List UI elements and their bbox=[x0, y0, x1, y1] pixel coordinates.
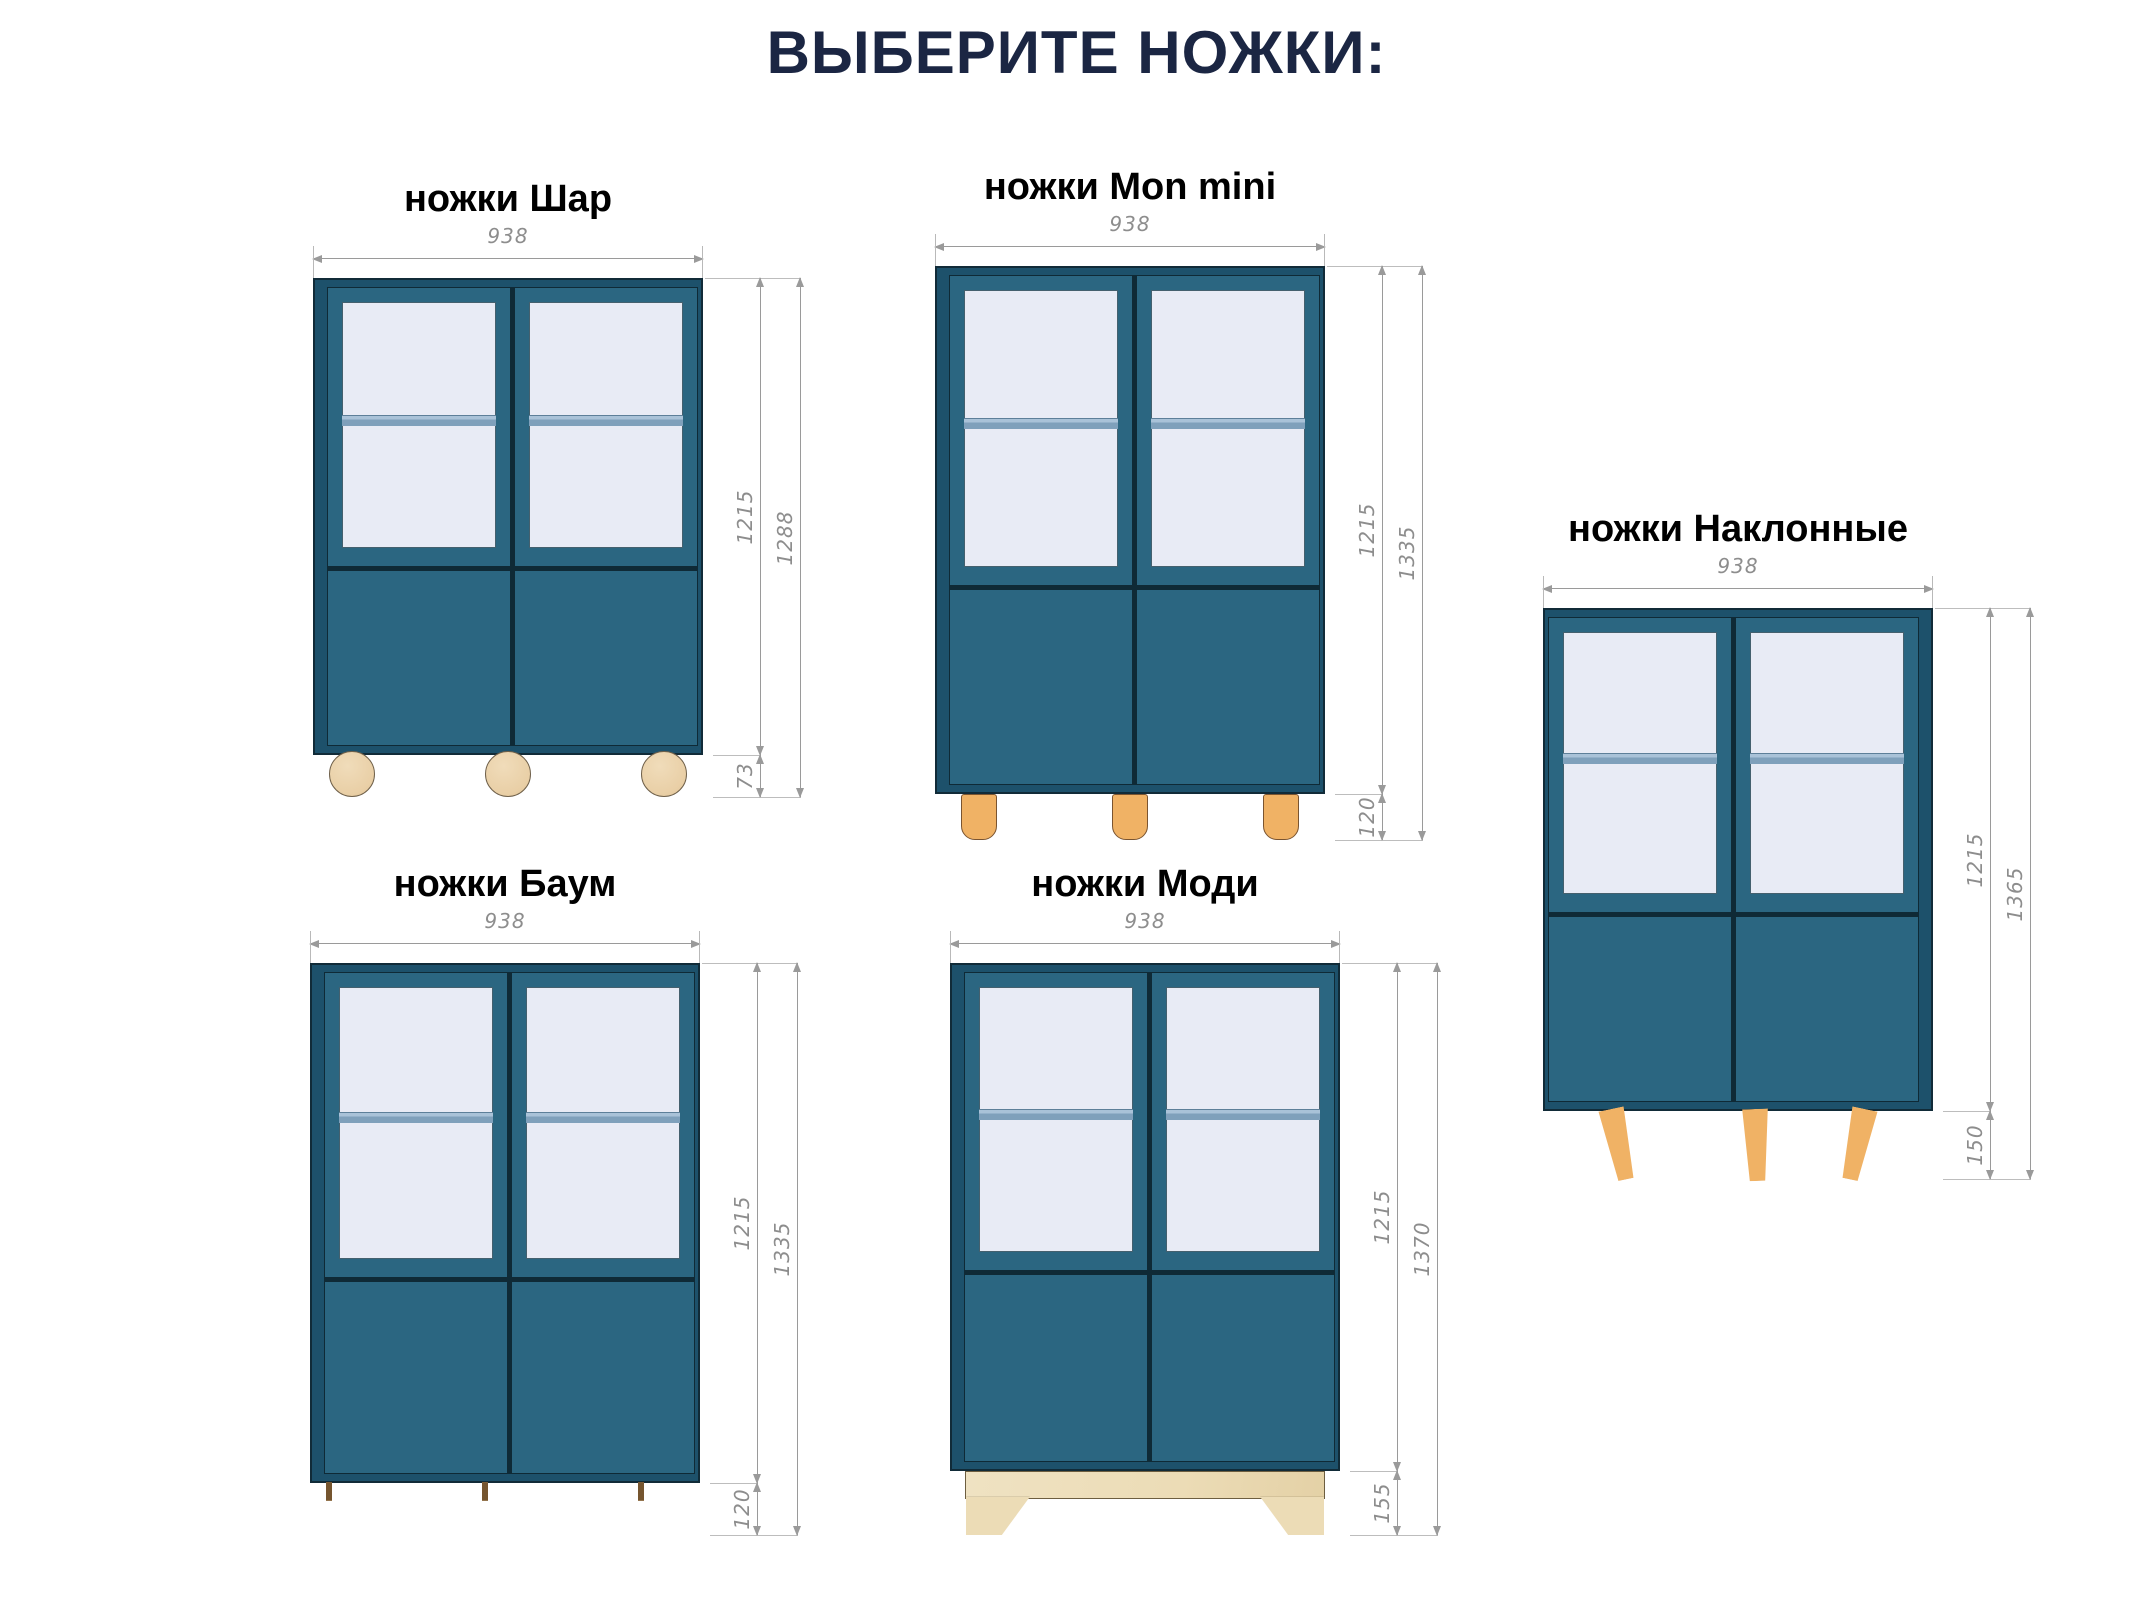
shelf-line bbox=[339, 1112, 493, 1123]
dim-arrow-up-icon bbox=[796, 277, 804, 287]
dim-arrow-up-icon bbox=[1393, 962, 1401, 972]
dim-extension-tick bbox=[310, 931, 311, 965]
total-height-value: 1335 bbox=[770, 1222, 794, 1277]
width-dim-value: 938 bbox=[310, 909, 700, 933]
dim-extension-tick bbox=[935, 234, 936, 268]
glass-pane bbox=[1166, 987, 1320, 1252]
dim-extension-tick bbox=[1324, 234, 1325, 268]
angled-leg bbox=[1595, 1106, 1641, 1183]
dim-arrow-down-icon bbox=[2026, 1170, 2034, 1180]
total-height-dim: 1335 bbox=[1422, 266, 1423, 840]
solid-doors-row bbox=[327, 570, 698, 746]
shelf-line bbox=[979, 1109, 1133, 1120]
body-height-value: 1215 bbox=[730, 1196, 754, 1251]
disc-stack-foot bbox=[326, 1483, 372, 1535]
ball-foot bbox=[329, 751, 375, 797]
glass-door-left bbox=[949, 275, 1133, 586]
body-height-dim: 1215 bbox=[1382, 266, 1383, 794]
glass-doors-row bbox=[324, 972, 695, 1278]
dim-extension-tick bbox=[313, 246, 314, 280]
body-height-value: 1215 bbox=[1963, 832, 1987, 887]
dim-arrow-up-icon bbox=[756, 754, 764, 764]
dim-arrow-up-icon bbox=[753, 1482, 761, 1492]
legs-angled bbox=[1543, 1111, 1933, 1179]
glass-door-right bbox=[514, 287, 698, 567]
cabinet-doors bbox=[324, 972, 695, 1474]
glass-door-left bbox=[327, 287, 511, 567]
solid-door-right bbox=[514, 570, 698, 746]
dim-extension-line bbox=[1935, 608, 2031, 609]
solid-doors-row bbox=[324, 1281, 695, 1474]
glass-pane bbox=[526, 987, 680, 1259]
dim-arrow-up-icon bbox=[753, 962, 761, 972]
glass-pane bbox=[1151, 290, 1305, 567]
glass-doors-row bbox=[1548, 617, 1919, 913]
cylinder-foot bbox=[961, 794, 997, 840]
shelf-line bbox=[1151, 418, 1305, 429]
solid-door-left bbox=[324, 1281, 508, 1474]
glass-door-right bbox=[1151, 972, 1335, 1271]
variant-label-baum: ножки Баум bbox=[280, 863, 730, 906]
plinth-band bbox=[965, 1471, 1325, 1499]
cabinet-drawing bbox=[1543, 608, 1933, 1111]
dim-arrow-down-icon bbox=[1986, 1170, 1994, 1180]
dim-extension-tick bbox=[1932, 576, 1933, 610]
total-height-dim: 1335 bbox=[797, 963, 798, 1535]
glass-door-right bbox=[511, 972, 695, 1278]
variant-label-shar: ножки Шар bbox=[283, 178, 733, 221]
glass-pane bbox=[339, 987, 493, 1259]
shelf-line bbox=[342, 415, 496, 426]
plinth-base bbox=[965, 1471, 1325, 1535]
solid-door-right bbox=[1735, 916, 1919, 1102]
dim-arrow-down-icon bbox=[753, 1526, 761, 1536]
leg-height-value: 73 bbox=[733, 762, 757, 789]
cylinder-foot bbox=[1112, 794, 1148, 840]
cabinet-doors bbox=[949, 275, 1320, 785]
body-height-value: 1215 bbox=[1370, 1190, 1394, 1245]
glass-pane bbox=[964, 290, 1118, 567]
variant-label-naklonnye: ножки Наклонные bbox=[1513, 508, 1963, 551]
leg-height-value: 120 bbox=[730, 1488, 754, 1529]
glass-doors-row bbox=[964, 972, 1335, 1271]
variant-label-modi: ножки Моди bbox=[920, 863, 1370, 906]
disc-stack-foot bbox=[482, 1483, 528, 1535]
legs-plinth bbox=[950, 1471, 1340, 1535]
dim-arrow-down-icon bbox=[1378, 831, 1386, 841]
glass-door-left bbox=[324, 972, 508, 1278]
dim-arrow-up-icon bbox=[2026, 607, 2034, 617]
glass-pane bbox=[979, 987, 1133, 1252]
dim-arrow-up-icon bbox=[756, 277, 764, 287]
solid-doors-row bbox=[949, 589, 1320, 785]
dim-arrow-down-icon bbox=[1433, 1526, 1441, 1536]
cabinet-doors bbox=[1548, 617, 1919, 1102]
plinth-foot-right bbox=[1260, 1497, 1324, 1535]
disc-stack-foot bbox=[638, 1483, 684, 1535]
leg-height-dim: 120 bbox=[757, 1483, 758, 1535]
cylinder-foot bbox=[1263, 794, 1299, 840]
dim-extension-line bbox=[710, 1483, 758, 1484]
dim-extension-line bbox=[1943, 1111, 1991, 1112]
glass-door-right bbox=[1136, 275, 1320, 586]
glass-doors-row bbox=[949, 275, 1320, 586]
dim-extension-line bbox=[1335, 794, 1383, 795]
glass-doors-row bbox=[327, 287, 698, 567]
dim-extension-tick bbox=[699, 931, 700, 965]
width-dim-value: 938 bbox=[313, 224, 703, 248]
leg-height-dim: 150 bbox=[1990, 1111, 1991, 1179]
leg-height-value: 155 bbox=[1370, 1482, 1394, 1523]
dim-extension-line bbox=[705, 278, 801, 279]
shelf-line bbox=[529, 415, 683, 426]
angled-leg bbox=[1739, 1108, 1773, 1181]
dim-arrow-down-icon bbox=[756, 788, 764, 798]
glass-pane bbox=[342, 302, 496, 548]
glass-door-right bbox=[1735, 617, 1919, 913]
leg-height-dim: 120 bbox=[1382, 794, 1383, 840]
dim-extension-line bbox=[1342, 963, 1438, 964]
dim-arrow-up-icon bbox=[793, 962, 801, 972]
leg-height-value: 150 bbox=[1963, 1124, 1987, 1165]
cabinet-doors bbox=[327, 287, 698, 746]
dim-arrow-down-icon bbox=[1418, 831, 1426, 841]
width-dim-line bbox=[950, 943, 1340, 944]
solid-door-right bbox=[1151, 1274, 1335, 1462]
dim-arrow-up-icon bbox=[1378, 265, 1386, 275]
glass-pane bbox=[1563, 632, 1717, 894]
solid-doors-row bbox=[964, 1274, 1335, 1462]
ball-foot bbox=[485, 751, 531, 797]
leg-height-dim: 73 bbox=[760, 755, 761, 797]
width-dim-value: 938 bbox=[935, 212, 1325, 236]
solid-door-left bbox=[1548, 916, 1732, 1102]
body-height-dim: 1215 bbox=[757, 963, 758, 1483]
dim-extension-line bbox=[702, 963, 798, 964]
body-height-dim: 1215 bbox=[1397, 963, 1398, 1471]
solid-door-right bbox=[1136, 589, 1320, 785]
disc bbox=[486, 1482, 488, 1501]
glass-pane bbox=[529, 302, 683, 548]
body-height-dim: 1215 bbox=[1990, 608, 1991, 1111]
total-height-dim: 1288 bbox=[800, 278, 801, 797]
shelf-line bbox=[526, 1112, 680, 1123]
legs-cylinder bbox=[935, 794, 1325, 840]
total-height-value: 1365 bbox=[2003, 866, 2027, 921]
dim-arrow-up-icon bbox=[1433, 962, 1441, 972]
cabinet-drawing bbox=[950, 963, 1340, 1471]
solid-door-right bbox=[511, 1281, 695, 1474]
total-height-dim: 1370 bbox=[1437, 963, 1438, 1535]
total-height-value: 1335 bbox=[1395, 526, 1419, 581]
dim-arrow-up-icon bbox=[1986, 1110, 1994, 1120]
width-dim-line bbox=[310, 943, 700, 944]
width-dim-line bbox=[313, 258, 703, 259]
disc bbox=[330, 1482, 332, 1501]
dim-arrow-up-icon bbox=[1418, 265, 1426, 275]
plinth-foot-left bbox=[966, 1497, 1030, 1535]
dim-extension-tick bbox=[1339, 931, 1340, 965]
dim-arrow-up-icon bbox=[1378, 793, 1386, 803]
width-dim-value: 938 bbox=[1543, 554, 1933, 578]
legs-ball bbox=[313, 755, 703, 797]
body-height-dim: 1215 bbox=[760, 278, 761, 755]
glass-pane bbox=[1750, 632, 1904, 894]
angled-leg bbox=[1834, 1106, 1880, 1183]
shelf-line bbox=[1750, 753, 1904, 764]
dim-arrow-down-icon bbox=[796, 788, 804, 798]
glass-door-left bbox=[1548, 617, 1732, 913]
total-height-value: 1370 bbox=[1410, 1222, 1434, 1277]
cabinet-drawing bbox=[313, 278, 703, 755]
dim-extension-line bbox=[713, 755, 761, 756]
leg-height-value: 120 bbox=[1355, 796, 1379, 837]
dim-extension-tick bbox=[702, 246, 703, 280]
width-dim-line bbox=[935, 246, 1325, 247]
width-dim-line bbox=[1543, 588, 1933, 589]
leg-height-dim: 155 bbox=[1397, 1471, 1398, 1535]
variant-label-mon-mini: ножки Mon mini bbox=[905, 166, 1355, 209]
total-height-value: 1288 bbox=[773, 510, 797, 565]
solid-door-left bbox=[949, 589, 1133, 785]
dim-arrow-down-icon bbox=[1393, 1526, 1401, 1536]
dim-arrow-up-icon bbox=[1986, 607, 1994, 617]
ball-foot bbox=[641, 751, 687, 797]
infographic-canvas: ВЫБЕРИТЕ НОЖКИ: ножки Шар 938 bbox=[0, 0, 2153, 1600]
glass-door-left bbox=[964, 972, 1148, 1271]
legs-stacked-discs bbox=[310, 1483, 700, 1535]
body-height-value: 1215 bbox=[1355, 503, 1379, 558]
disc bbox=[642, 1482, 644, 1501]
dim-extension-tick bbox=[950, 931, 951, 965]
shelf-line bbox=[1563, 753, 1717, 764]
cabinet-drawing bbox=[310, 963, 700, 1483]
shelf-line bbox=[964, 418, 1118, 429]
total-height-dim: 1365 bbox=[2030, 608, 2031, 1179]
solid-door-left bbox=[964, 1274, 1148, 1462]
body-height-value: 1215 bbox=[733, 489, 757, 544]
page-title: ВЫБЕРИТЕ НОЖКИ: bbox=[0, 18, 2153, 87]
width-dim-value: 938 bbox=[950, 909, 1340, 933]
solid-doors-row bbox=[1548, 916, 1919, 1102]
dim-extension-line bbox=[1350, 1471, 1398, 1472]
shelf-line bbox=[1166, 1109, 1320, 1120]
dim-arrow-down-icon bbox=[793, 1526, 801, 1536]
dim-arrow-up-icon bbox=[1393, 1470, 1401, 1480]
cabinet-drawing bbox=[935, 266, 1325, 794]
dim-extension-tick bbox=[1543, 576, 1544, 610]
solid-door-left bbox=[327, 570, 511, 746]
dim-extension-line bbox=[1327, 266, 1423, 267]
cabinet-doors bbox=[964, 972, 1335, 1462]
